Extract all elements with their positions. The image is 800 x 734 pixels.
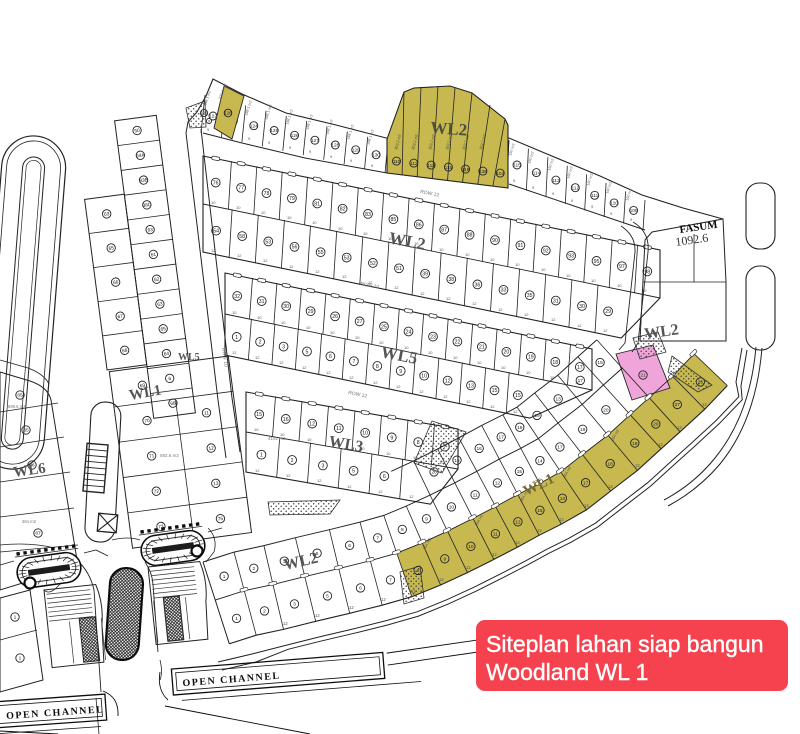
svg-text:12: 12: [317, 478, 322, 483]
svg-text:7: 7: [389, 578, 392, 584]
svg-text:17: 17: [499, 435, 505, 441]
svg-text:138: 138: [479, 169, 487, 174]
svg-text:83B: 83B: [139, 177, 148, 184]
svg-text:12: 12: [537, 528, 542, 533]
svg-text:36: 36: [475, 282, 481, 288]
svg-text:12: 12: [559, 517, 564, 522]
svg-text:19: 19: [528, 355, 534, 361]
svg-text:12: 12: [286, 473, 291, 478]
svg-text:12: 12: [326, 370, 331, 375]
svg-text:12: 12: [279, 360, 284, 365]
svg-text:1: 1: [235, 335, 238, 341]
svg-text:86: 86: [416, 222, 422, 228]
svg-text:12: 12: [263, 258, 268, 263]
svg-text:12: 12: [315, 613, 320, 618]
svg-text:10: 10: [307, 437, 312, 442]
svg-text:20: 20: [603, 408, 609, 414]
svg-text:Siteplan lahan siap bangun: Siteplan lahan siap bangun: [486, 631, 764, 657]
svg-text:15: 15: [492, 388, 498, 394]
svg-text:38: 38: [448, 277, 454, 283]
svg-text:78: 78: [264, 191, 270, 197]
svg-text:12: 12: [466, 399, 471, 404]
svg-text:10: 10: [490, 257, 495, 262]
svg-text:10: 10: [501, 365, 506, 370]
svg-text:32: 32: [234, 294, 240, 300]
svg-text:12: 12: [342, 274, 347, 279]
svg-text:12: 12: [658, 442, 663, 447]
svg-text:2: 2: [291, 458, 294, 464]
svg-text:21: 21: [479, 345, 485, 351]
svg-text:10: 10: [312, 220, 317, 225]
svg-text:115: 115: [445, 165, 453, 170]
svg-text:5: 5: [326, 594, 329, 600]
svg-text:13: 13: [468, 383, 474, 389]
svg-text:35: 35: [527, 293, 533, 299]
svg-text:119: 119: [462, 167, 470, 172]
svg-text:10: 10: [386, 451, 391, 456]
svg-text:10: 10: [566, 273, 571, 278]
svg-text:11: 11: [473, 493, 478, 499]
svg-text:12: 12: [237, 253, 242, 258]
svg-text:22: 22: [455, 340, 461, 346]
svg-text:39: 39: [422, 272, 428, 278]
svg-text:26: 26: [431, 470, 437, 476]
svg-text:12: 12: [513, 409, 518, 414]
svg-text:23: 23: [430, 334, 436, 340]
svg-text:364 m2: 364 m2: [22, 519, 37, 524]
svg-text:85: 85: [391, 217, 397, 223]
svg-text:54: 54: [213, 229, 219, 235]
svg-text:10: 10: [526, 370, 531, 375]
svg-text:9: 9: [208, 119, 210, 123]
svg-text:97: 97: [619, 264, 625, 270]
svg-text:10: 10: [477, 360, 482, 365]
svg-text:13: 13: [556, 397, 562, 403]
svg-text:12: 12: [349, 375, 354, 380]
svg-text:12: 12: [347, 484, 352, 489]
svg-text:65: 65: [23, 428, 29, 434]
svg-text:113: 113: [552, 178, 560, 184]
svg-text:10: 10: [232, 310, 237, 315]
svg-text:1: 1: [14, 615, 17, 621]
svg-text:10: 10: [515, 262, 520, 267]
svg-text:21: 21: [640, 373, 646, 379]
svg-text:12: 12: [608, 484, 613, 489]
svg-text:12: 12: [378, 489, 383, 494]
svg-text:11: 11: [493, 532, 498, 538]
svg-text:90: 90: [492, 238, 498, 244]
svg-text:10: 10: [281, 320, 286, 325]
svg-text:12: 12: [419, 389, 424, 394]
svg-text:12: 12: [232, 350, 237, 355]
svg-text:12: 12: [255, 355, 260, 360]
svg-text:112: 112: [410, 161, 418, 166]
svg-text:110: 110: [393, 159, 401, 164]
svg-text:3: 3: [282, 345, 285, 351]
svg-text:12: 12: [443, 394, 448, 399]
svg-text:113: 113: [427, 163, 435, 168]
svg-text:67: 67: [35, 531, 41, 537]
svg-text:15: 15: [515, 393, 521, 399]
svg-text:29: 29: [534, 413, 540, 419]
svg-text:94A: 94A: [136, 152, 146, 159]
svg-text:Woodland WL 1: Woodland WL 1: [486, 659, 648, 685]
svg-text:9: 9: [425, 517, 428, 523]
svg-text:17: 17: [578, 378, 584, 384]
svg-text:27: 27: [357, 319, 363, 325]
svg-text:12: 12: [495, 481, 501, 487]
svg-text:126: 126: [291, 133, 299, 139]
svg-text:25: 25: [381, 324, 387, 330]
svg-text:27: 27: [675, 402, 681, 408]
svg-text:12: 12: [409, 494, 414, 499]
svg-text:83: 83: [365, 212, 371, 218]
svg-text:17: 17: [577, 365, 583, 371]
svg-text:93: 93: [568, 254, 574, 260]
svg-text:10: 10: [439, 247, 444, 252]
svg-text:31: 31: [553, 298, 559, 304]
svg-text:128: 128: [331, 143, 339, 149]
svg-text:17: 17: [557, 445, 563, 451]
svg-text:10: 10: [363, 231, 368, 236]
svg-text:8: 8: [401, 527, 404, 533]
svg-text:1: 1: [235, 616, 238, 622]
svg-text:53: 53: [344, 255, 350, 261]
svg-text:51: 51: [396, 266, 402, 272]
svg-text:91: 91: [518, 243, 524, 249]
svg-text:103: 103: [496, 171, 504, 176]
svg-text:2: 2: [259, 340, 262, 346]
svg-text:16: 16: [283, 417, 289, 423]
svg-text:10: 10: [453, 355, 458, 360]
svg-text:12: 12: [349, 605, 354, 610]
svg-text:10: 10: [257, 315, 262, 320]
svg-text:111: 111: [591, 193, 599, 199]
svg-text:12: 12: [420, 291, 425, 296]
svg-text:13: 13: [560, 496, 566, 502]
svg-text:81: 81: [314, 201, 320, 207]
svg-text:14: 14: [537, 458, 543, 464]
svg-text:12: 12: [381, 597, 386, 602]
svg-text:12: 12: [702, 402, 707, 407]
svg-text:88: 88: [467, 233, 473, 239]
svg-text:33: 33: [501, 288, 507, 294]
svg-text:24: 24: [406, 329, 412, 335]
svg-text:6: 6: [329, 354, 332, 360]
svg-text:82: 82: [340, 207, 346, 213]
svg-text:12: 12: [677, 425, 682, 430]
svg-text:12: 12: [635, 463, 640, 468]
svg-text:12: 12: [584, 503, 589, 508]
svg-text:4191 m2: 4191 m2: [268, 436, 286, 441]
svg-text:124: 124: [250, 123, 258, 129]
svg-text:10: 10: [421, 374, 427, 380]
svg-text:10: 10: [306, 325, 311, 330]
svg-text:12: 12: [577, 323, 582, 328]
svg-text:10: 10: [468, 544, 474, 550]
svg-text:9: 9: [399, 369, 402, 375]
svg-text:10: 10: [254, 427, 259, 432]
svg-text:12: 12: [551, 317, 556, 322]
svg-text:53: 53: [265, 239, 271, 245]
svg-text:11: 11: [336, 426, 341, 432]
svg-text:114: 114: [533, 170, 541, 176]
svg-text:7: 7: [376, 536, 379, 542]
svg-text:12: 12: [515, 540, 520, 545]
svg-text:10: 10: [287, 215, 292, 220]
svg-text:12: 12: [315, 269, 320, 274]
svg-text:115: 115: [513, 163, 521, 169]
svg-text:12: 12: [498, 307, 503, 312]
svg-text:127: 127: [311, 138, 319, 144]
svg-text:10: 10: [338, 226, 343, 231]
svg-text:699.6 m2: 699.6 m2: [8, 404, 26, 409]
svg-text:10: 10: [330, 330, 335, 335]
svg-text:10: 10: [541, 267, 546, 272]
svg-text:129: 129: [352, 148, 360, 154]
svg-text:18: 18: [552, 360, 558, 366]
svg-text:20: 20: [653, 422, 659, 428]
svg-text:17: 17: [583, 480, 589, 486]
svg-text:20: 20: [504, 350, 510, 356]
svg-text:110: 110: [610, 201, 618, 207]
svg-text:6: 6: [348, 543, 351, 549]
svg-text:12: 12: [289, 264, 294, 269]
svg-text:76: 76: [213, 181, 219, 187]
svg-text:8: 8: [376, 364, 379, 370]
svg-text:12: 12: [396, 384, 401, 389]
svg-text:112: 112: [571, 185, 579, 191]
svg-text:52: 52: [370, 261, 376, 267]
svg-text:65: 65: [17, 393, 23, 399]
svg-text:12: 12: [492, 552, 497, 557]
svg-text:12: 12: [603, 328, 608, 333]
svg-text:12: 12: [373, 380, 378, 385]
svg-text:3: 3: [293, 602, 296, 608]
svg-text:58: 58: [239, 234, 245, 240]
svg-text:10: 10: [591, 278, 596, 283]
svg-text:29: 29: [605, 309, 611, 315]
svg-text:6: 6: [359, 586, 362, 592]
svg-text:2: 2: [252, 566, 255, 572]
svg-text:1: 1: [260, 453, 263, 459]
svg-text:10: 10: [261, 210, 266, 215]
svg-text:29: 29: [308, 309, 314, 315]
svg-text:5: 5: [352, 469, 355, 475]
svg-text:15: 15: [597, 360, 603, 366]
svg-text:10: 10: [355, 335, 360, 340]
svg-text:1: 1: [19, 656, 22, 662]
svg-text:30: 30: [579, 304, 585, 310]
svg-text:2: 2: [263, 609, 266, 615]
svg-text:79: 79: [289, 196, 295, 202]
svg-text:592.6 m2: 592.6 m2: [160, 453, 179, 458]
svg-text:126: 126: [224, 111, 232, 116]
svg-text:12: 12: [490, 404, 495, 409]
svg-text:12: 12: [394, 285, 399, 290]
svg-text:130: 130: [372, 152, 380, 158]
svg-text:10: 10: [211, 200, 216, 205]
svg-text:31: 31: [259, 299, 265, 305]
svg-text:10: 10: [617, 283, 622, 288]
svg-text:26: 26: [332, 314, 338, 320]
svg-text:95: 95: [594, 259, 600, 265]
svg-text:9: 9: [443, 557, 446, 563]
svg-text:7: 7: [352, 359, 355, 365]
svg-text:19: 19: [632, 441, 638, 447]
svg-text:15: 15: [517, 469, 523, 475]
svg-text:12: 12: [283, 621, 288, 626]
svg-text:9: 9: [390, 435, 393, 441]
svg-text:10: 10: [362, 431, 368, 437]
svg-text:10: 10: [465, 252, 470, 257]
svg-text:16: 16: [477, 446, 483, 452]
svg-text:12: 12: [524, 312, 529, 317]
svg-text:15: 15: [537, 508, 543, 514]
svg-text:77: 77: [238, 186, 244, 192]
svg-text:12: 12: [472, 301, 477, 306]
svg-text:92: 92: [543, 248, 549, 254]
svg-text:12: 12: [309, 421, 315, 427]
svg-text:8: 8: [417, 440, 420, 446]
svg-text:12: 12: [255, 468, 260, 473]
svg-text:10: 10: [236, 205, 241, 210]
svg-text:6: 6: [383, 474, 386, 480]
svg-text:19: 19: [517, 425, 523, 431]
svg-text:30: 30: [283, 304, 289, 310]
svg-text:18: 18: [608, 461, 614, 467]
svg-text:12: 12: [445, 379, 451, 385]
svg-text:12: 12: [302, 365, 307, 370]
svg-text:5: 5: [306, 349, 309, 355]
svg-text:1: 1: [223, 574, 226, 580]
svg-text:109: 109: [630, 208, 638, 214]
svg-text:55: 55: [318, 250, 324, 256]
svg-text:3: 3: [321, 463, 324, 469]
svg-text:10: 10: [428, 350, 433, 355]
svg-text:12: 12: [446, 296, 451, 301]
svg-text:10: 10: [449, 505, 455, 511]
svg-text:12: 12: [466, 565, 471, 570]
svg-text:56: 56: [292, 245, 298, 251]
svg-text:12: 12: [515, 520, 521, 526]
svg-text:38C: 38C: [142, 202, 152, 209]
svg-text:12: 12: [439, 577, 444, 582]
svg-text:125: 125: [270, 128, 278, 134]
svg-text:15: 15: [256, 412, 262, 418]
svg-text:19: 19: [580, 427, 586, 433]
svg-text:87: 87: [441, 228, 447, 234]
svg-text:15: 15: [454, 458, 460, 464]
